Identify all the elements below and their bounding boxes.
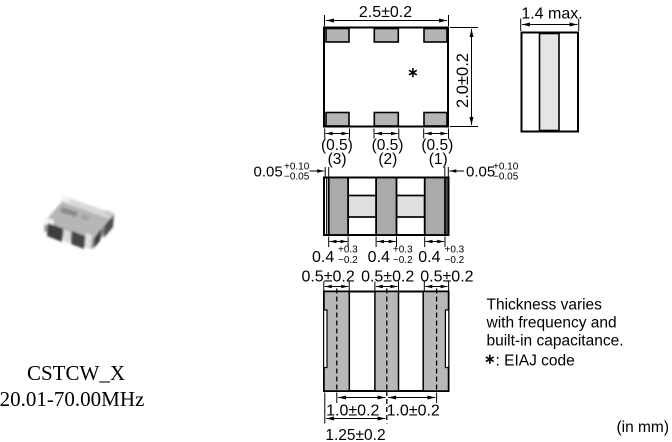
svg-text:(in mm): (in mm) — [616, 419, 669, 436]
svg-text:−0.2: −0.2 — [338, 255, 358, 266]
svg-text:1.0±0.2: 1.0±0.2 — [326, 403, 379, 420]
svg-text:0.4: 0.4 — [312, 249, 334, 266]
svg-text:1.25±0.2: 1.25±0.2 — [325, 427, 385, 442]
svg-text:0.5±0.2: 0.5±0.2 — [361, 268, 414, 285]
svg-text:2.0±0.2: 2.0±0.2 — [454, 53, 472, 108]
svg-text:(3): (3) — [328, 151, 347, 168]
svg-text:0.4: 0.4 — [418, 249, 440, 266]
svg-text:−0.05: −0.05 — [493, 171, 519, 182]
svg-text:0.05: 0.05 — [466, 163, 495, 180]
svg-text:with frequency and: with frequency and — [486, 315, 617, 332]
svg-text:1.0±0.2: 1.0±0.2 — [387, 403, 440, 420]
svg-text:+0.3: +0.3 — [393, 245, 413, 256]
svg-text:: EIAJ code: : EIAJ code — [496, 352, 575, 369]
svg-text:(1): (1) — [429, 151, 448, 168]
svg-text:(2): (2) — [378, 151, 397, 168]
svg-text:−0.2: −0.2 — [393, 255, 413, 266]
svg-text:built-in capacitance.: built-in capacitance. — [487, 333, 624, 350]
svg-text:−0.2: −0.2 — [445, 255, 465, 266]
svg-text:0.05: 0.05 — [253, 163, 282, 180]
svg-text:CSTCW_X: CSTCW_X — [27, 361, 125, 385]
svg-text:Thickness varies: Thickness varies — [487, 297, 603, 314]
svg-text:2.5±0.2: 2.5±0.2 — [359, 4, 412, 21]
svg-text:+0.3: +0.3 — [338, 245, 358, 256]
svg-text:1.4 max.: 1.4 max. — [521, 6, 582, 23]
svg-text:0.4: 0.4 — [368, 249, 390, 266]
svg-text:0.5±0.2: 0.5±0.2 — [301, 268, 354, 285]
svg-text:−0.05: −0.05 — [284, 171, 310, 182]
svg-text:0.5±0.2: 0.5±0.2 — [420, 268, 473, 285]
svg-text:+0.3: +0.3 — [445, 245, 465, 256]
svg-text:20.01-70.00MHz: 20.01-70.00MHz — [0, 387, 144, 411]
